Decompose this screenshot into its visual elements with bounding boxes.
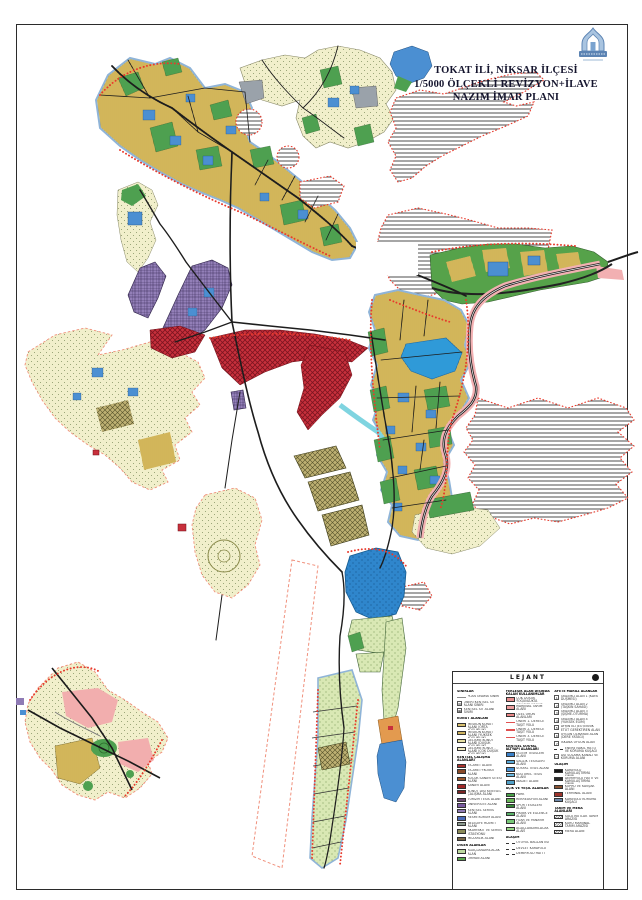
legend-row: EĞİTİM TESİSLERİ ALANI [506,752,552,759]
legend-row-label: TİCARET+KONUT ALANI [468,769,503,776]
legend-swatch [457,731,466,736]
legend-row-label: KARAYOLU KAMULAŞTIRMA SINIRI [565,769,600,776]
legend-row: TİCARET+KONUT ALANI [457,769,503,776]
legend-row: YERLEŞİK ALAN DIŞINDA KALAN KULLANIMLAR [506,690,552,697]
legend-swatch [506,713,515,718]
legend-row-label: PİKNİK VE EĞLENCE ALANI [516,812,551,819]
legend-row: DEMİRYOLU HATTI [506,852,552,857]
legend-row-label: RESMİ KURUM ALANI [468,816,503,819]
legend-row: KÜÇÜK SANAYİ SİTESİ ALANI [457,777,503,784]
legend-swatch [554,792,563,797]
legend-swatch [554,777,563,782]
legend-swatch [457,697,466,698]
legend-swatch [506,737,515,738]
legend-row-label: DEMİRYOLU HATTI VE KAMULAŞTIRMA SINIRI [565,777,600,784]
legend-row-label: MARJİNAL TARIM ALANI [516,705,551,712]
legend-row-label: SANAYİ ALANI [468,784,503,787]
legend-swatch: 7 [554,741,559,746]
legend-box: LEJANT SINIRLAR PLAN ONAMA SINIRI [452,671,604,890]
legend-swatch: □ [554,754,559,759]
legend-swatch [457,837,466,842]
plan-title-line2: 1/5000 ÖLÇEKLİ REVİZYON+İLAVE [385,78,627,92]
legend-row: TİCARET ALANI [457,764,503,769]
legend-row-label: KENTSEL SERVİS ALANI [468,809,503,816]
legend-row: KENTSEL SOSYAL ALTYAPI ALANLARI [506,745,552,752]
legend-row: DİĞER ALANLAR [457,844,503,849]
plan-title-line1: TOKAT İLİ, NİKSAR İLÇESİ [385,64,627,78]
legend-row-label: KÖPRÜ VE KAVŞAK ALANI [565,785,600,792]
legend-row-label: MESKUN KONUT ALANI (YÜKSEK YOĞUNLUK) [468,731,503,738]
legend-row: AÇIK VE YEŞİL ALANLAR [506,787,552,792]
legend-row: KENTSEL SERVİS ALANI [457,809,503,816]
legend-swatch: 3 [554,710,559,715]
legend-swatch [457,769,466,774]
legend-row-label: ÖNERİ KENTSEL SİT ALANI SINIRI [464,701,503,708]
legend-swatch [457,849,466,854]
legend-swatch [457,747,466,752]
legend-row: SANAYİ ALANI [457,784,503,789]
legend-row-label: ÖNERİ 1. DERECE TAŞIT YOLU [516,720,551,727]
legend-row-label: GELİŞME KONUT ALANI (ÇOK DÜŞÜK YOĞUNLUK) [468,747,503,754]
legend-swatch [506,729,515,730]
legend-swatch [457,822,466,827]
legend-row: AĞAÇLANDIRILACAK ALAN [457,849,503,856]
legend-row: ÜNİVERSİTE ALANI [457,803,503,808]
legend-swatch [554,798,563,803]
legend-row: PARK [506,793,552,798]
legend-swatch: 5 [554,725,559,730]
legend-row: 3 ÖNLEMLİ ALAN 3 (ŞİŞME-OTURMA) [554,710,600,717]
legend-swatch [506,752,515,757]
legend-row-label: BELEDİYE HİZMET ALANI [468,822,503,829]
legend-swatch [506,804,515,809]
legend-row: DEMİRYOLU HATTI VE KAMULAŞTIRMA SINIRI [554,777,600,784]
legend-row-label: KENTSEL ÇALIŞMA ALANLARI [457,756,503,763]
legend-swatch [506,798,515,803]
legend-row-label: TERMİNAL ALANI [565,792,600,795]
legend-row: KÖPRÜ VE KAVŞAK ALANI [554,785,600,792]
plan-title-line3: NAZIM İMAR PLANI [385,91,627,105]
legend-swatch [506,819,515,824]
legend-row-label: MERA ALANI [565,830,600,833]
legend-swatch [457,739,466,744]
settlement-inset [16,662,168,800]
legend-header: LEJANT [453,672,603,684]
legend-row-label: KENTSEL SOSYAL ALTYAPI ALANLARI [506,745,552,752]
legend-swatch: ▦ [457,708,462,713]
legend-row-label: AYRINTILI JEOTEKNİK ETÜT GEREKTİREN ALAN [561,725,600,732]
legend-row-label: GELİŞME KONUT ALANI (DÜŞÜK YOĞUNLUK) [468,739,503,746]
legend-column-3: AFETE MARUZ ALANLAR 1 ÖNLEMLİ ALAN 1 (KA… [554,687,600,862]
legend-row-label: ÜNİVERSİTE ALANI [468,803,503,806]
legend-swatch [506,767,515,772]
legend-swatch [506,849,515,850]
legend-swatch [506,705,515,710]
legend-row-label: TARIM VE MERA ALANLARI [554,807,600,814]
legend-row: MEZARLIK ALANI [457,837,503,842]
legend-row-label: ÖNERİ 2. DERECE TAŞIT YOLU [516,728,551,735]
legend-swatch [457,790,466,795]
municipality-emblem-logo [577,27,609,63]
legend-row: SPOR TESİSLERİ ALANI [506,804,552,811]
legend-row-label: ÖNLEMLİ ALAN 1 (KAYA DÜŞMESİ) [561,695,600,702]
legend-row: ÖNERİ 3. DERECE TAŞIT YOLU [506,735,552,742]
legend-row-label: AÇIK VE YEŞİL ALANLAR [506,787,552,790]
legend-row-label: PLAN ONAMA SINIRI [468,695,503,698]
legend-row-label: DEMİRYOLU HATTI [516,852,551,855]
plan-sheet: TOKAT İLİ, NİKSAR İLÇESİ 1/5000 ÖLÇEKLİ … [0,0,642,900]
legend-row-label: ULAŞIM [554,763,600,766]
legend-row: MESKUN KONUT ALANI (ORTA YOĞUNLUK) [457,723,503,730]
legend-row: GELİŞME KONUT ALANI (DÜŞÜK YOĞUNLUK) [457,739,503,746]
legend-row: 1 ÖNLEMLİ ALAN 1 (KAYA DÜŞMESİ) [554,695,600,702]
legend-row: MARJİNAL TARIM ALANI [506,705,552,712]
legend-row: SULU MUTLAK TARIM ARAZİSİ [554,815,600,822]
legend-row-label: KURU MARJİNAL TARIM ARAZİSİ [565,822,600,829]
legend-swatch [457,723,466,728]
legend-row-label: ÖNERİ 3. DERECE TAŞIT YOLU [516,735,551,742]
legend-row: İBADET ALANI [506,780,552,785]
legend-row-label: YERLEŞİK ALAN DIŞINDA KALAN KULLANIMLAR [506,690,552,697]
legend-swatch [554,830,563,835]
legend-swatch [554,815,563,820]
legend-row-label: AĞAÇLANDIRILACAK ALAN [516,827,551,834]
legend-row: SAĞLIK TESİSLERİ ALANI [506,760,552,767]
legend-swatch [457,764,466,769]
legend-swatch [506,760,515,765]
legend-row: ORMAN ALANI [457,857,503,862]
legend-row-label: KÜLTÜREL TESİS ALANI [516,773,551,780]
legend-row-label: SULU MUTLAK TARIM ARAZİSİ [565,815,600,822]
legend-row-label: KARAYOLU KORUMA KUŞAĞI [565,798,600,805]
legend-swatch [554,769,563,774]
legend-row-label: SOSYAL TESİS ALANI [516,767,551,770]
legend-row-label: AKARYAKIT VE SERVİS İSTASYONU [468,829,503,836]
legend-row: BELEDİYE HİZMET ALANI [457,822,503,829]
legend-row-label: EĞİTİM TESİSLERİ ALANI [516,752,551,759]
legend-row-label: İBADET ALANI [516,780,551,783]
legend-row-label: İSKANA UYGUN ALAN [561,741,600,744]
legend-swatch [506,827,515,832]
legend-row: ÖZEL ÜRÜN ALANLARI [506,713,552,720]
legend-row-label: ÖNLEMLİ ALAN 3 (ŞİŞME-OTURMA) [561,710,600,717]
legend-row: ULAŞIM [506,836,552,841]
legend-title: LEJANT [453,674,603,681]
legend-row: FUAR VE PANAYIR ALANI [506,819,552,826]
legend-row-label: ÖNLEMLİ ALAN 2 (TAŞKIN SAHASI) [561,703,600,710]
legend-swatch [554,822,563,827]
legend-row: □ DSİ SULAMA KANALI VE KORUMA ALANI [554,754,600,761]
legend-row: ULAŞIM [554,763,600,768]
legend-row: DEVLET KARAYOLU [506,847,552,852]
legend-row: AFETE MARUZ ALANLAR [554,690,600,695]
legend-row: AĞAÇLANDIRILACAK ALAN [506,827,552,834]
legend-row-label: ENERJİ NAKİL HATTI VE KORUMA KUŞAĞI [565,747,600,754]
legend-row: ▦ KENTSEL SİT ALANI SINIRI [457,708,503,715]
legend-row-label: TURİZM TESİS ALANI [468,798,503,801]
legend-row-label: OTOYOL BAĞLANTISI [516,841,551,844]
legend-row: TURİZM TESİS ALANI [457,798,503,803]
legend-swatch [554,785,563,790]
legend-row: KONUT DIŞI KENTSEL ÇALIŞMA ALANI [457,790,503,797]
legend-row: KONUT ALANLARI [457,717,503,722]
legend-row-label: KENTSEL SİT ALANI SINIRI [464,708,503,715]
legend-row-label: ÖNLEMLİ ALAN 4 (YÜKSEK EĞİM) [561,718,600,725]
legend-row: ▨ ÖNERİ KENTSEL SİT ALANI SINIRI [457,701,503,708]
southern-corridor [252,446,406,868]
legend-swatch [506,812,515,817]
plan-title: TOKAT İLİ, NİKSAR İLÇESİ 1/5000 ÖLÇEKLİ … [385,64,627,105]
legend-row: SOSYAL TESİS ALANI [506,767,552,772]
legend-swatch [457,803,466,808]
legend-row-label: AĞAÇLANDIRILACAK ALAN [468,849,503,856]
legend-swatch [506,722,515,723]
legend-row-label: SAĞLIK TESİSLERİ ALANI [516,760,551,767]
legend-row: AKARYAKIT VE SERVİS İSTASYONU [457,829,503,836]
legend-row-label: ULAŞIM [506,836,552,839]
legend-row-label: REKREASYON ALANI [516,798,551,801]
legend-row-label: PARK [516,793,551,796]
legend-row-label: ÇOK DÜŞÜK YOĞUNLUKTA GELİŞME KONUT ALANI [516,697,551,704]
legend-swatch [506,843,515,844]
legend-row-label: FUAR VE PANAYIR ALANI [516,819,551,826]
legend-swatch [506,854,515,855]
legend-swatch [457,798,466,803]
legend-row-label: SINIRLAR [457,690,503,693]
legend-row: KARAYOLU KORUMA KUŞAĞI [554,798,600,805]
legend-row-label: UYGUN OLMAYAN ALAN (DERE YATAĞI) [561,733,600,740]
legend-swatch [457,816,466,821]
legend-swatch [506,697,515,702]
legend-row-label: MEZARLIK ALANI [468,837,503,840]
legend-row-label: DEVLET KARAYOLU [516,847,551,850]
legend-swatch: 6 [554,733,559,738]
legend-row: 2 ÖNLEMLİ ALAN 2 (TAŞKIN SAHASI) [554,703,600,710]
legend-row: 7 İSKANA UYGUN ALAN [554,741,600,746]
legend-row-label: ORMAN ALANI [468,857,503,860]
legend-row: 4 ÖNLEMLİ ALAN 4 (YÜKSEK EĞİM) [554,718,600,725]
legend-row: ÇOK DÜŞÜK YOĞUNLUKTA GELİŞME KONUT ALANI [506,697,552,704]
legend-swatch [457,784,466,789]
legend-column-1: SINIRLAR PLAN ONAMA SINIRI ▨ ÖNERİ KENTS… [457,687,503,862]
legend-row: OTOYOL BAĞLANTISI [506,841,552,846]
legend-swatch [457,777,466,782]
legend-swatch [506,773,515,778]
legend-row: ÖNERİ 2. DERECE TAŞIT YOLU [506,728,552,735]
legend-row: MERA ALANI [554,830,600,835]
legend-row: 5 AYRINTILI JEOTEKNİK ETÜT GEREKTİREN AL… [554,725,600,732]
legend-row-label: TİCARET ALANI [468,764,503,767]
legend-row-label: AFETE MARUZ ALANLAR [554,690,600,693]
legend-swatch [554,749,563,750]
legend-row: ÖNERİ 1. DERECE TAŞIT YOLU [506,720,552,727]
legend-row: ENERJİ NAKİL HATTI VE KORUMA KUŞAĞI [554,747,600,754]
legend-row: MESKUN KONUT ALANI (YÜKSEK YOĞUNLUK) [457,731,503,738]
legend-row-label: KÜÇÜK SANAYİ SİTESİ ALANI [468,777,503,784]
legend-row: GELİŞME KONUT ALANI (ÇOK DÜŞÜK YOĞUNLUK) [457,747,503,754]
legend-swatch: 1 [554,695,559,700]
legend-swatch [457,829,466,834]
legend-row: KENTSEL ÇALIŞMA ALANLARI [457,756,503,763]
legend-row: 6 UYGUN OLMAYAN ALAN (DERE YATAĞI) [554,733,600,740]
legend-swatch [506,780,515,785]
legend-row-label: DİĞER ALANLAR [457,844,503,847]
legend-row-label: ÖZEL ÜRÜN ALANLARI [516,713,551,720]
ne-green-band [430,244,638,304]
legend-swatch: 2 [554,703,559,708]
legend-row-label: SPOR TESİSLERİ ALANI [516,804,551,811]
legend-row: TERMİNAL ALANI [554,792,600,797]
legend-column-2: YERLEŞİK ALAN DIŞINDA KALAN KULLANIMLAR … [506,687,552,862]
legend-row: TARIM VE MERA ALANLARI [554,807,600,814]
legend-row-label: MESKUN KONUT ALANI (ORTA YOĞUNLUK) [468,723,503,730]
legend-row: SINIRLAR [457,690,503,695]
legend-row: PİKNİK VE EĞLENCE ALANI [506,812,552,819]
legend-swatch [457,809,466,814]
legend-row: RESMİ KURUM ALANI [457,816,503,821]
legend-swatch [506,793,515,798]
legend-row: REKREASYON ALANI [506,798,552,803]
legend-row: KARAYOLU KAMULAŞTIRMA SINIRI [554,769,600,776]
legend-row: KURU MARJİNAL TARIM ARAZİSİ [554,822,600,829]
legend-swatch: ▨ [457,701,462,706]
legend-row-label: KONUT DIŞI KENTSEL ÇALIŞMA ALANI [468,790,503,797]
legend-swatch [457,857,466,862]
legend-row-label: KONUT ALANLARI [457,717,503,720]
legend-swatch: 4 [554,718,559,723]
west-development-areas [25,182,262,598]
legend-seal-icon [592,674,599,681]
legend-row: KÜLTÜREL TESİS ALANI [506,773,552,780]
legend-row-label: DSİ SULAMA KANALI VE KORUMA ALANI [561,754,600,761]
legend-row: PLAN ONAMA SINIRI [457,695,503,700]
map-label-box [356,242,418,275]
